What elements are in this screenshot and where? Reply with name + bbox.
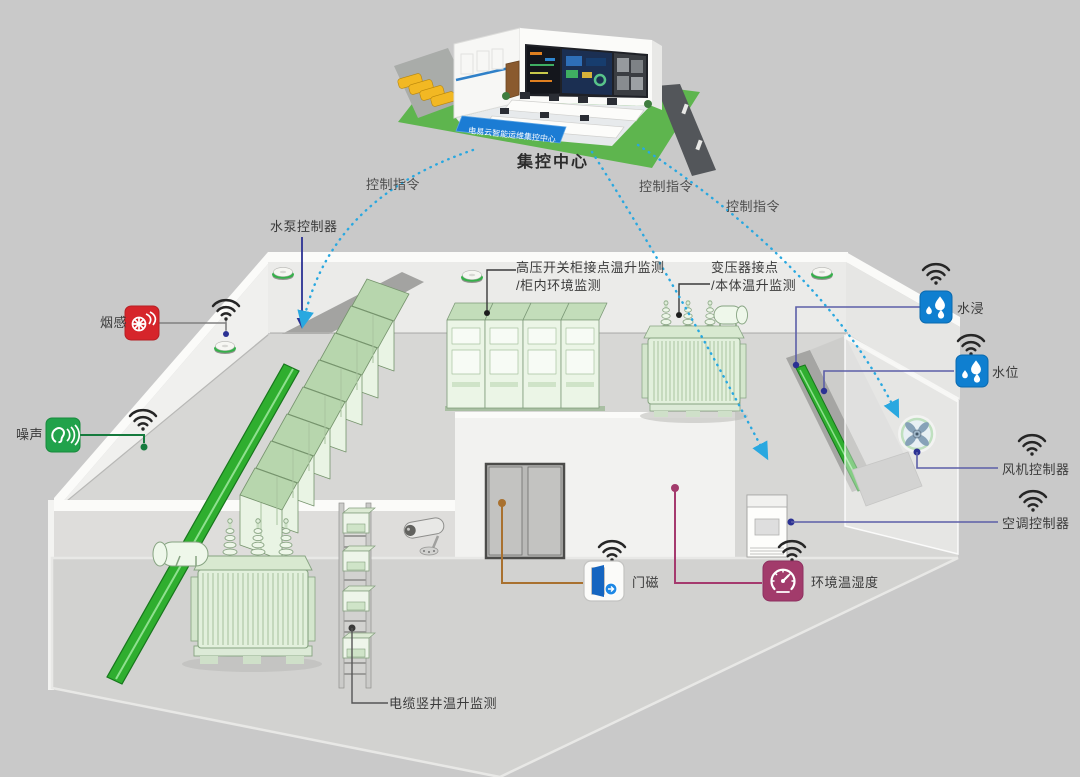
hv-cabinet-monitoring-line1: 高压开关柜接点温升监测 [516,259,665,277]
smoke-sensor-icon [125,306,159,340]
control-center-label: 集控中心 [517,154,589,172]
door-magnet-icon [584,561,624,601]
fan-controller-label: 风机控制器 [1002,461,1070,479]
water-level-label: 水位 [992,364,1019,382]
transformer-monitoring-label: 变压器接点 /本体温升监测 [711,259,796,295]
noise-sensor-icon [46,418,80,452]
command-label-1: 控制指令 [366,176,420,194]
smoke-detector-disc [461,270,483,283]
command-label-2: 控制指令 [639,178,693,196]
scene-canvas: 电易云智能运维集控中心 [0,0,1080,777]
smoke-sensor-label: 烟感 [100,314,127,332]
water-level-icon [956,355,988,387]
smoke-detector-disc [272,267,294,280]
hv-switchgear-cabinets [445,303,607,411]
door-magnet-label: 门磁 [632,574,659,592]
ac-unit [747,495,787,557]
env-temp-humidity-label: 环境温湿度 [811,574,879,592]
double-door [486,464,564,558]
noise-sensor-label: 噪声 [16,426,43,444]
command-label-3: 控制指令 [726,198,780,216]
water-pump-controller-label: 水泵控制器 [270,218,338,236]
ac-controller-label: 空调控制器 [1002,515,1070,533]
smoke-detector-disc [811,267,833,280]
transformer-monitoring-line2: /本体温升监测 [711,277,796,295]
env-temp-humidity-icon [763,561,803,601]
water-immersion-label: 水浸 [957,300,984,318]
transformer-monitoring-line1: 变压器接点 [711,259,796,277]
water-immersion-icon [920,291,952,323]
smoke-detector-disc [214,341,236,354]
cable-shaft-monitoring-label: 电缆竖井温升监测 [389,695,497,713]
hv-cabinet-monitoring-line2: /柜内环境监测 [516,277,665,295]
hv-cabinet-monitoring-label: 高压开关柜接点温升监测 /柜内环境监测 [516,259,665,295]
isometric-monitoring-diagram: 电易云智能运维集控中心 [0,0,1080,777]
